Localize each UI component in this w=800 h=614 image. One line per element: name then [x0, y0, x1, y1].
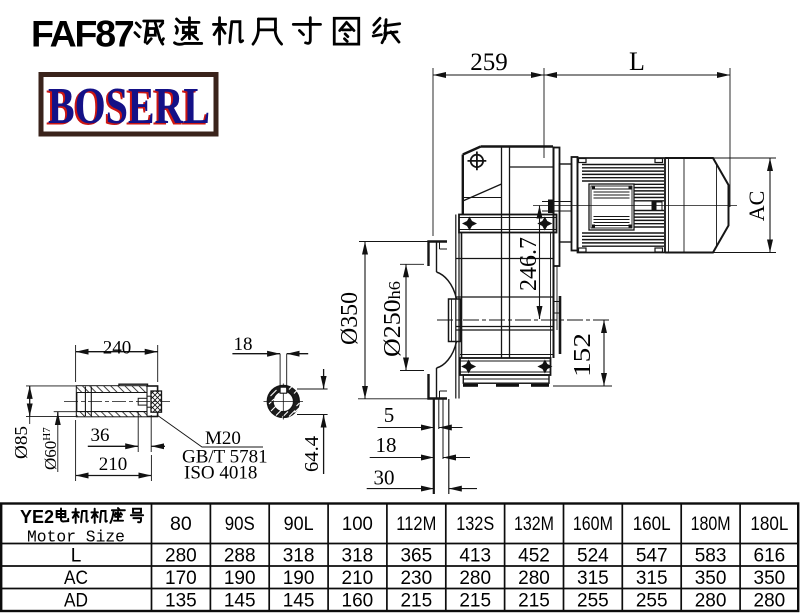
svg-text:215: 215: [400, 591, 432, 612]
svg-text:452: 452: [518, 546, 550, 567]
svg-text:170: 170: [165, 568, 197, 589]
svg-text:315: 315: [577, 568, 609, 589]
svg-text:112M: 112M: [396, 513, 436, 535]
svg-text:BOSERL: BOSERL: [48, 78, 210, 135]
svg-text:255: 255: [636, 591, 668, 612]
svg-text:280: 280: [754, 591, 786, 612]
svg-text:315: 315: [636, 568, 668, 589]
svg-text:215: 215: [518, 591, 550, 612]
svg-text:280: 280: [518, 568, 550, 589]
svg-text:Ø60H7: Ø60H7: [41, 427, 60, 470]
svg-text:350: 350: [695, 568, 727, 589]
svg-text:350: 350: [754, 568, 786, 589]
svg-text:132S: 132S: [456, 513, 494, 535]
svg-text:90L: 90L: [284, 513, 314, 535]
svg-text:AD: AD: [64, 591, 88, 612]
svg-text:210: 210: [342, 568, 374, 589]
svg-text:L: L: [71, 546, 82, 567]
svg-text:190: 190: [283, 568, 315, 589]
svg-text:145: 145: [283, 591, 315, 612]
svg-text:152: 152: [570, 333, 596, 377]
svg-text:413: 413: [459, 546, 491, 567]
svg-text:AC: AC: [64, 568, 88, 589]
svg-text:ISO 4018: ISO 4018: [184, 463, 257, 484]
svg-text:280: 280: [459, 568, 491, 589]
svg-text:180L: 180L: [750, 513, 788, 535]
svg-text:Ø85: Ø85: [11, 426, 31, 459]
svg-text:160L: 160L: [633, 513, 671, 535]
svg-text:547: 547: [636, 546, 668, 567]
svg-text:280: 280: [695, 591, 727, 612]
svg-text:FAF87: FAF87: [31, 13, 134, 55]
svg-text:64.4: 64.4: [301, 436, 323, 472]
svg-text:36: 36: [91, 425, 110, 446]
svg-text:288: 288: [224, 546, 256, 567]
svg-text:30: 30: [374, 466, 395, 490]
svg-text:210: 210: [99, 454, 128, 475]
svg-text:18: 18: [234, 334, 253, 355]
svg-text:160M: 160M: [573, 513, 613, 535]
svg-text:240: 240: [103, 338, 132, 359]
svg-text:255: 255: [577, 591, 609, 612]
svg-text:190: 190: [224, 568, 256, 589]
svg-text:18: 18: [376, 433, 397, 457]
svg-text:616: 616: [754, 546, 786, 567]
svg-text:Ø350: Ø350: [337, 292, 363, 345]
svg-text:YE2: YE2: [20, 507, 54, 527]
svg-text:318: 318: [342, 546, 374, 567]
svg-text:318: 318: [283, 546, 315, 567]
svg-text:365: 365: [400, 546, 432, 567]
svg-text:215: 215: [459, 591, 491, 612]
svg-text:259: 259: [470, 49, 508, 76]
svg-text:230: 230: [400, 568, 432, 589]
svg-text:L: L: [629, 47, 645, 76]
svg-text:Motor Size: Motor Size: [27, 528, 125, 547]
svg-text:135: 135: [165, 591, 197, 612]
svg-text:5: 5: [384, 403, 395, 427]
svg-text:524: 524: [577, 546, 609, 567]
svg-text:132M: 132M: [514, 513, 554, 535]
svg-text:280: 280: [165, 546, 197, 567]
svg-text:AC: AC: [744, 191, 769, 222]
svg-text:246.7: 246.7: [516, 237, 542, 291]
svg-text:160: 160: [342, 591, 374, 612]
svg-text:180M: 180M: [691, 513, 731, 535]
svg-text:145: 145: [224, 591, 256, 612]
svg-text:583: 583: [695, 546, 727, 567]
svg-text:Ø250h6: Ø250h6: [380, 281, 406, 357]
svg-text:90S: 90S: [225, 513, 255, 535]
svg-text:80: 80: [170, 513, 192, 535]
svg-text:100: 100: [342, 513, 373, 535]
